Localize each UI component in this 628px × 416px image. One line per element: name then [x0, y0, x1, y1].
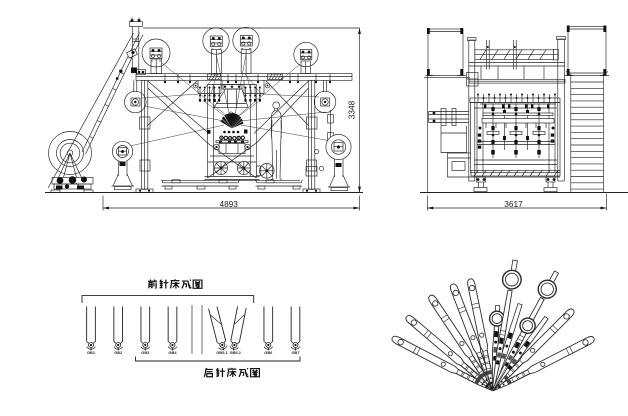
svg-text:GB7: GB7: [292, 350, 300, 355]
svg-text:GB3: GB3: [141, 350, 150, 355]
svg-text:3348: 3348: [347, 100, 357, 119]
svg-text:4893: 4893: [219, 199, 238, 209]
svg-text:GB2: GB2: [114, 350, 123, 355]
svg-text:GB6: GB6: [264, 350, 273, 355]
svg-text:3617: 3617: [504, 199, 523, 209]
svg-text:GB5.1: GB5.1: [216, 350, 228, 355]
svg-text:GB1: GB1: [87, 350, 96, 355]
svg-text:GB5.2: GB5.2: [230, 350, 242, 355]
svg-text:GB4: GB4: [169, 350, 178, 355]
